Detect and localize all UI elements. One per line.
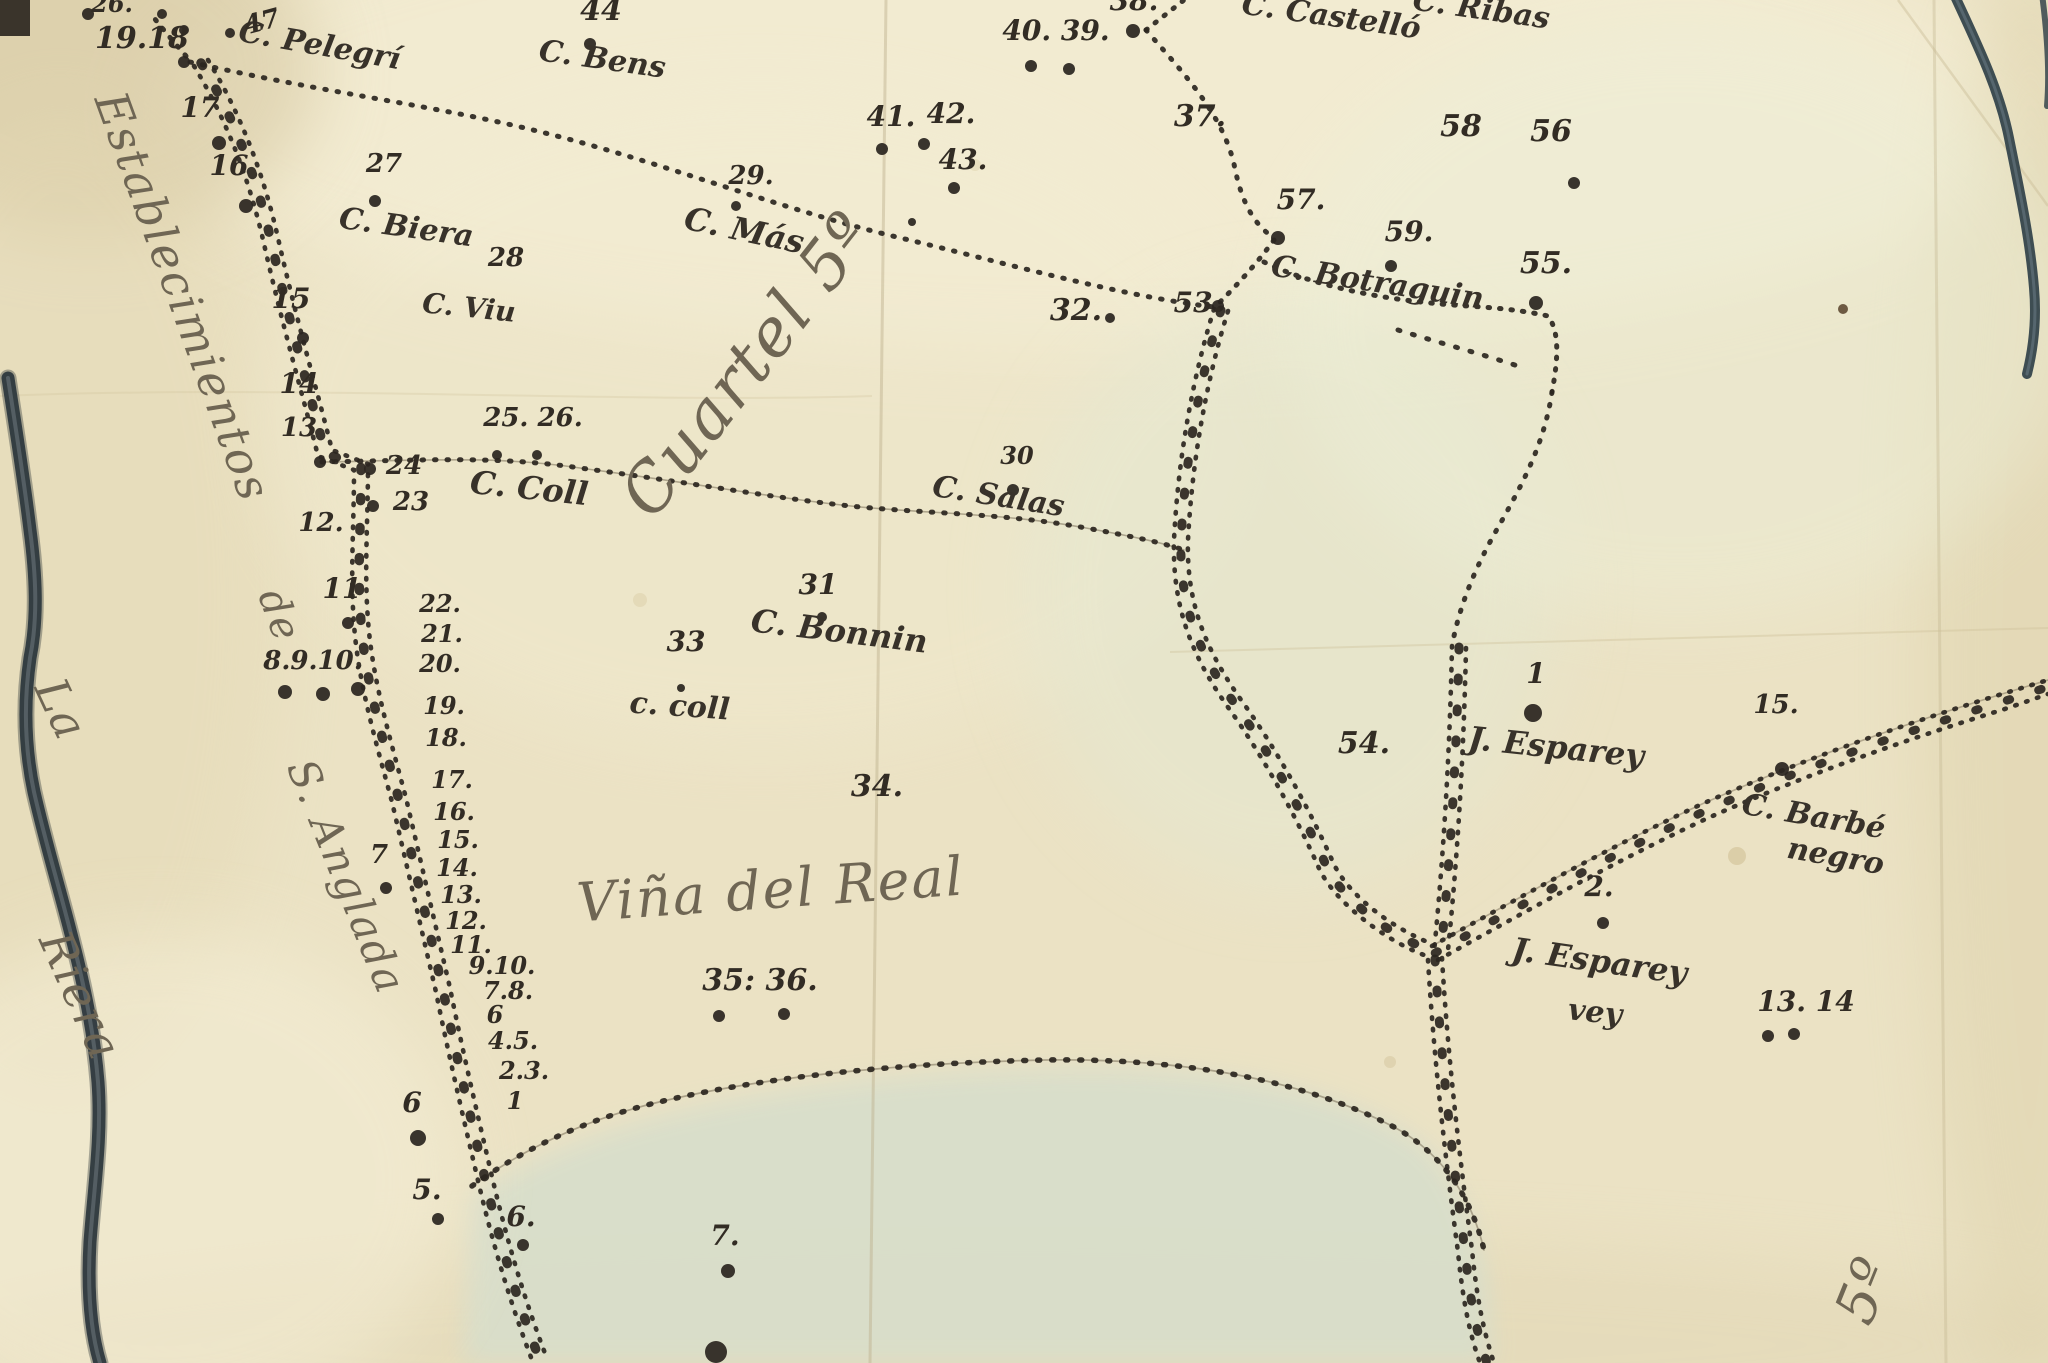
- parcel-number-label: 31: [799, 568, 838, 601]
- parcel-number-label: 5.: [412, 1173, 441, 1206]
- parcel-number-label: 16: [210, 149, 249, 182]
- parcel-number-label: 44: [580, 0, 622, 28]
- parcel-dot: [778, 1008, 790, 1020]
- stain: [1384, 1056, 1396, 1068]
- parcel-number-label: 59.: [1385, 215, 1434, 248]
- parcel-number-label: 24: [385, 451, 422, 481]
- parcel-dot: [367, 500, 379, 512]
- parcel-number-label: 4.5.: [488, 1026, 538, 1055]
- parcel-number-label: 38.: [1110, 0, 1159, 17]
- owner-name-label: J. Esparey: [1504, 929, 1692, 992]
- parcel-dot: [908, 218, 916, 226]
- parcel-number-label: 2.: [1583, 870, 1613, 903]
- stain: [1838, 304, 1848, 314]
- parcel-number-label: 33: [667, 625, 706, 658]
- stain: [633, 593, 647, 607]
- parcel-dot: [1775, 762, 1789, 776]
- parcel-dot: [721, 1264, 735, 1278]
- map-title-label: Viña del Real: [575, 845, 967, 935]
- parcel-dot: [713, 1010, 725, 1022]
- parcel-dot: [1063, 63, 1075, 75]
- parcel-number-label: 15.: [437, 825, 479, 854]
- parcel-number-label: 1: [1526, 657, 1545, 690]
- owner-name-label: c. coll: [628, 686, 730, 728]
- parcel-dot: [212, 136, 226, 150]
- parcel-number-label: 17.: [431, 765, 473, 794]
- parcel-dot: [316, 687, 330, 701]
- paper-tints: [0, 0, 2048, 1363]
- parcel-dot: [157, 9, 167, 19]
- parcel-dot: [278, 685, 292, 699]
- historical-map: EstablecimientosdeS. AngladaLaRieraViña …: [0, 0, 2048, 1363]
- parcel-number-label: 13.: [440, 880, 482, 909]
- parcel-dot: [876, 143, 888, 155]
- parcel-number-label: 17: [181, 91, 220, 124]
- parcel-dot: [380, 882, 392, 894]
- parcel-number-label: 16.: [433, 797, 475, 826]
- parcel-dot: [1529, 296, 1543, 310]
- parcel-dot: [705, 1341, 727, 1363]
- parcel-dot: [1788, 1028, 1800, 1040]
- parcel-number-label: 18.: [425, 723, 467, 752]
- parcel-number-label: 22.: [418, 589, 461, 618]
- parcel-number-label: 30: [1000, 441, 1034, 470]
- parcel-number-label: 11: [323, 572, 362, 605]
- parcel-number-label: 32.: [1050, 293, 1102, 328]
- parcel-dot: [1568, 177, 1580, 189]
- parcel-dot: [1126, 24, 1140, 38]
- field-tint-region: [464, 1068, 1492, 1363]
- parcel-number-label: 26.: [90, 0, 133, 18]
- parcel-dot: [297, 332, 309, 344]
- parcel-number-label: 53.: [1174, 286, 1223, 319]
- parcel-number-label: 7: [370, 840, 388, 870]
- parcel-dot: [239, 199, 253, 213]
- parcel-number-label: 2.3.: [498, 1056, 549, 1085]
- parcel-dot: [410, 1130, 426, 1146]
- parcel-number-label: 27: [365, 149, 402, 179]
- parcel-dot: [517, 1239, 529, 1251]
- parcel-dot: [1762, 1030, 1774, 1042]
- parcel-number-label: 42.: [927, 97, 976, 130]
- parcel-number-label: 40. 39.: [1002, 14, 1109, 47]
- stain: [1728, 847, 1746, 865]
- parcel-number-label: 15.: [1753, 690, 1798, 720]
- parcel-number-label: 57.: [1277, 183, 1326, 216]
- parcel-number-label: 14: [280, 367, 319, 400]
- parcel-number-label: 23: [392, 487, 429, 517]
- parcel-number-label: 13: [281, 413, 317, 443]
- parcel-number-label: 13. 14: [1757, 985, 1854, 1018]
- parcel-number-label: 34.: [851, 769, 903, 804]
- parcel-dot: [1271, 231, 1285, 245]
- parcel-number-label: 12.: [298, 508, 343, 538]
- parcel-dot: [492, 450, 502, 460]
- parcel-dot: [351, 682, 365, 696]
- parcel-number-label: 29.: [727, 161, 773, 191]
- parcel-number-label: 19.: [423, 691, 465, 720]
- parcel-number-label: 8.9.10.: [262, 646, 363, 676]
- paper-tint: [1280, 20, 2048, 620]
- parcel-dot: [1025, 60, 1037, 72]
- owner-name-label: vey: [1566, 992, 1626, 1033]
- parcel-number-label: 19.18: [95, 21, 189, 56]
- parcel-dot: [432, 1213, 444, 1225]
- parcel-number-label: 35: 36.: [702, 963, 817, 998]
- parcel-dot: [532, 450, 542, 460]
- parcel-number-label: 58: [1440, 109, 1482, 144]
- parcel-number-label: 25. 26.: [482, 403, 583, 433]
- parcel-number-label: 6.: [506, 1200, 535, 1233]
- parcel-dot: [948, 182, 960, 194]
- parcel-dot: [178, 56, 190, 68]
- parcel-number-label: 6: [402, 1086, 421, 1119]
- parcel-dot: [918, 138, 930, 150]
- parcel-number-label: 14.: [436, 853, 478, 882]
- parcel-number-label: 37.: [1174, 99, 1226, 134]
- parcel-dot: [1105, 313, 1115, 323]
- parcel-number-label: 7.: [710, 1219, 739, 1252]
- parcel-dot: [364, 463, 376, 475]
- parcel-number-label: 43.: [939, 143, 988, 176]
- parcel-number-label: 55.: [1520, 246, 1572, 281]
- parcel-number-label: 41.: [867, 100, 916, 133]
- parcel-dot: [314, 456, 326, 468]
- parcel-number-label: 54.: [1338, 726, 1390, 761]
- parcel-number-label: 21.: [420, 619, 463, 648]
- parcel-number-label: 28: [487, 243, 524, 273]
- parcel-number-label: 20.: [418, 649, 461, 678]
- map-canvas: EstablecimientosdeS. AngladaLaRieraViña …: [0, 0, 2048, 1363]
- parcel-number-label: 6: [487, 1000, 504, 1029]
- parcel-dot: [342, 617, 354, 629]
- corner-ink-blob: [0, 0, 30, 36]
- parcel-dot: [1524, 704, 1542, 722]
- parcel-dot: [1597, 917, 1609, 929]
- parcel-number-label: 15: [272, 282, 311, 315]
- parcel-number-label: 1: [507, 1086, 524, 1115]
- parcel-dot: [225, 28, 235, 38]
- parcel-number-label: 56: [1530, 114, 1572, 149]
